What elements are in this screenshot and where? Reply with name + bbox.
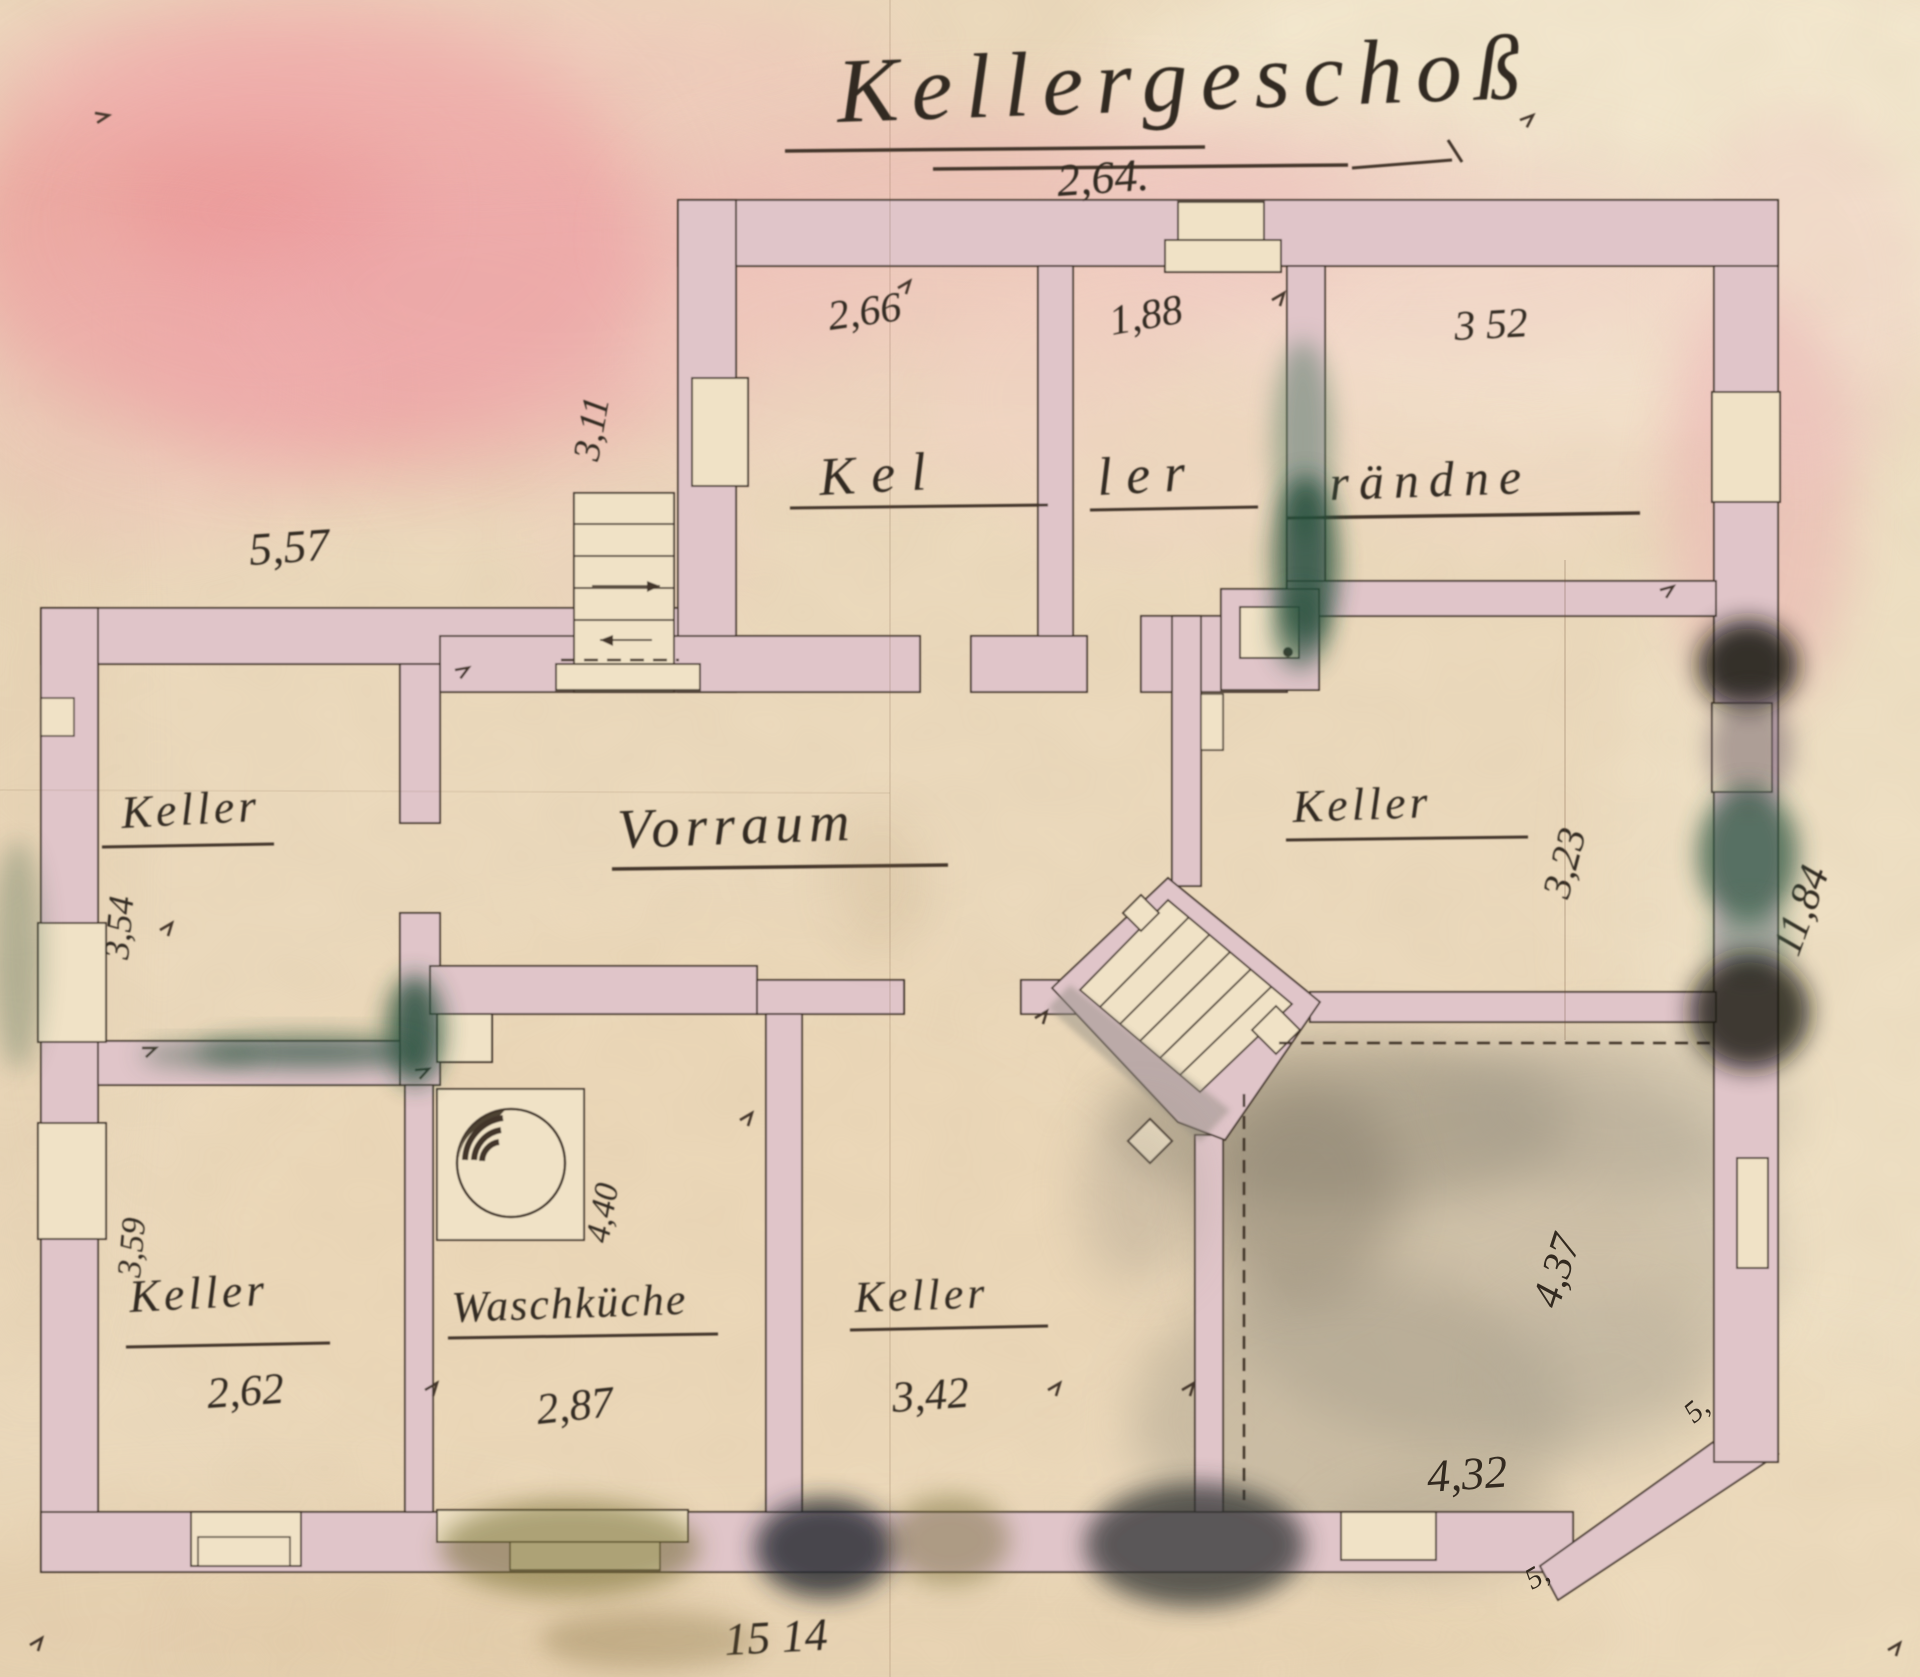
svg-text:Keller: Keller xyxy=(853,1268,990,1322)
svg-text:5,57: 5,57 xyxy=(247,518,333,575)
svg-text:2,62: 2,62 xyxy=(205,1364,285,1418)
svg-text:3,42: 3,42 xyxy=(889,1368,970,1422)
svg-text:Waschküche: Waschküche xyxy=(451,1275,688,1332)
svg-text:3,59: 3,59 xyxy=(111,1216,153,1279)
svg-text:ler: ler xyxy=(1095,442,1200,507)
svg-text:3,54: 3,54 xyxy=(96,894,141,961)
svg-text:Vorraum: Vorraum xyxy=(616,791,856,861)
svg-text:2,64.: 2,64. xyxy=(1055,149,1150,206)
svg-text:2,87: 2,87 xyxy=(534,1377,618,1434)
svg-text:Keller: Keller xyxy=(1291,776,1433,832)
svg-text:Keller: Keller xyxy=(119,780,261,838)
svg-text:3 52: 3 52 xyxy=(1452,300,1529,350)
svg-text:4,32: 4,32 xyxy=(1425,1445,1509,1501)
svg-text:rändne: rändne xyxy=(1328,448,1531,511)
svg-text:Kel: Kel xyxy=(816,441,943,507)
